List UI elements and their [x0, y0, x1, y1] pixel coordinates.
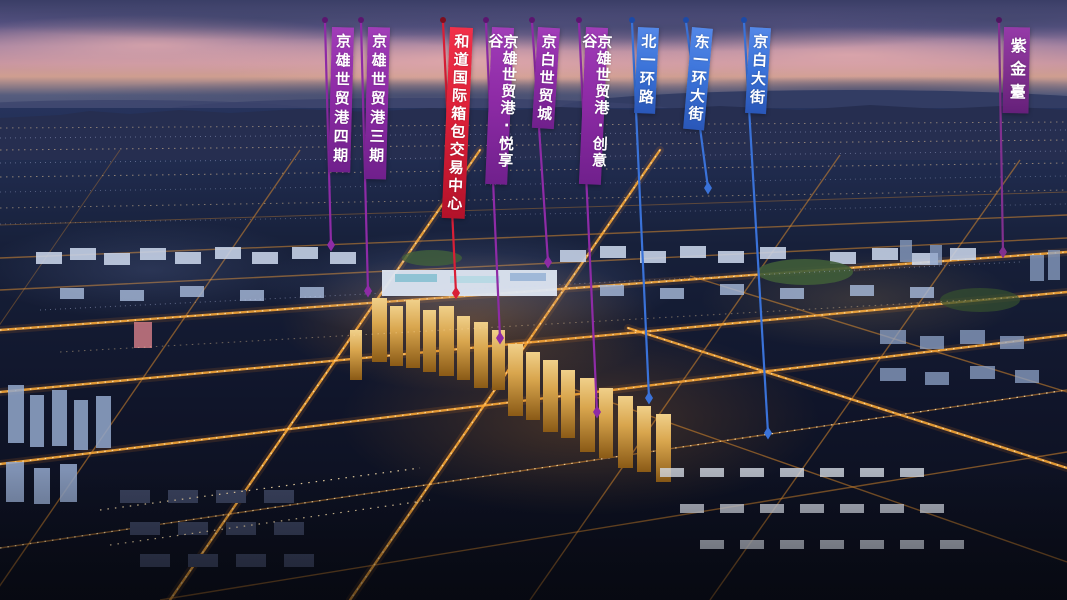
banner-zijintai: 紫金臺 — [1002, 27, 1029, 113]
aerial-night-render: 京雄世贸港四期 京雄世贸港三期 和道国际箱包交易中心 京雄世贸港·悦享谷 京白世… — [0, 0, 1067, 600]
banner-label: 京雄世贸港三期 — [368, 33, 386, 166]
banner-label: 京白大街 — [748, 33, 767, 108]
banner-label: 京白世贸城 — [536, 33, 556, 124]
banner-label: 紫金臺 — [1008, 37, 1025, 106]
banner-yuexiang-valley: 京雄世贸港·悦享谷 — [485, 27, 514, 185]
banner-jingxiong-wtc-phase3: 京雄世贸港三期 — [364, 27, 390, 180]
banner-label: 京雄世贸港·悦享谷 — [481, 33, 518, 185]
banner-north-ring-road: 北一环路 — [634, 27, 659, 114]
banner-label: 和道国际箱包交易中心 — [446, 33, 469, 213]
banner-label: 北一环路 — [637, 33, 655, 108]
banner-label: 京雄世贸港四期 — [332, 33, 350, 166]
banner-jingxiong-wtc-phase4: 京雄世贸港四期 — [328, 27, 354, 173]
banner-label: 京雄世贸港·创意谷 — [575, 33, 612, 185]
banner-chuangyi-valley: 京雄世贸港·创意谷 — [579, 27, 608, 185]
